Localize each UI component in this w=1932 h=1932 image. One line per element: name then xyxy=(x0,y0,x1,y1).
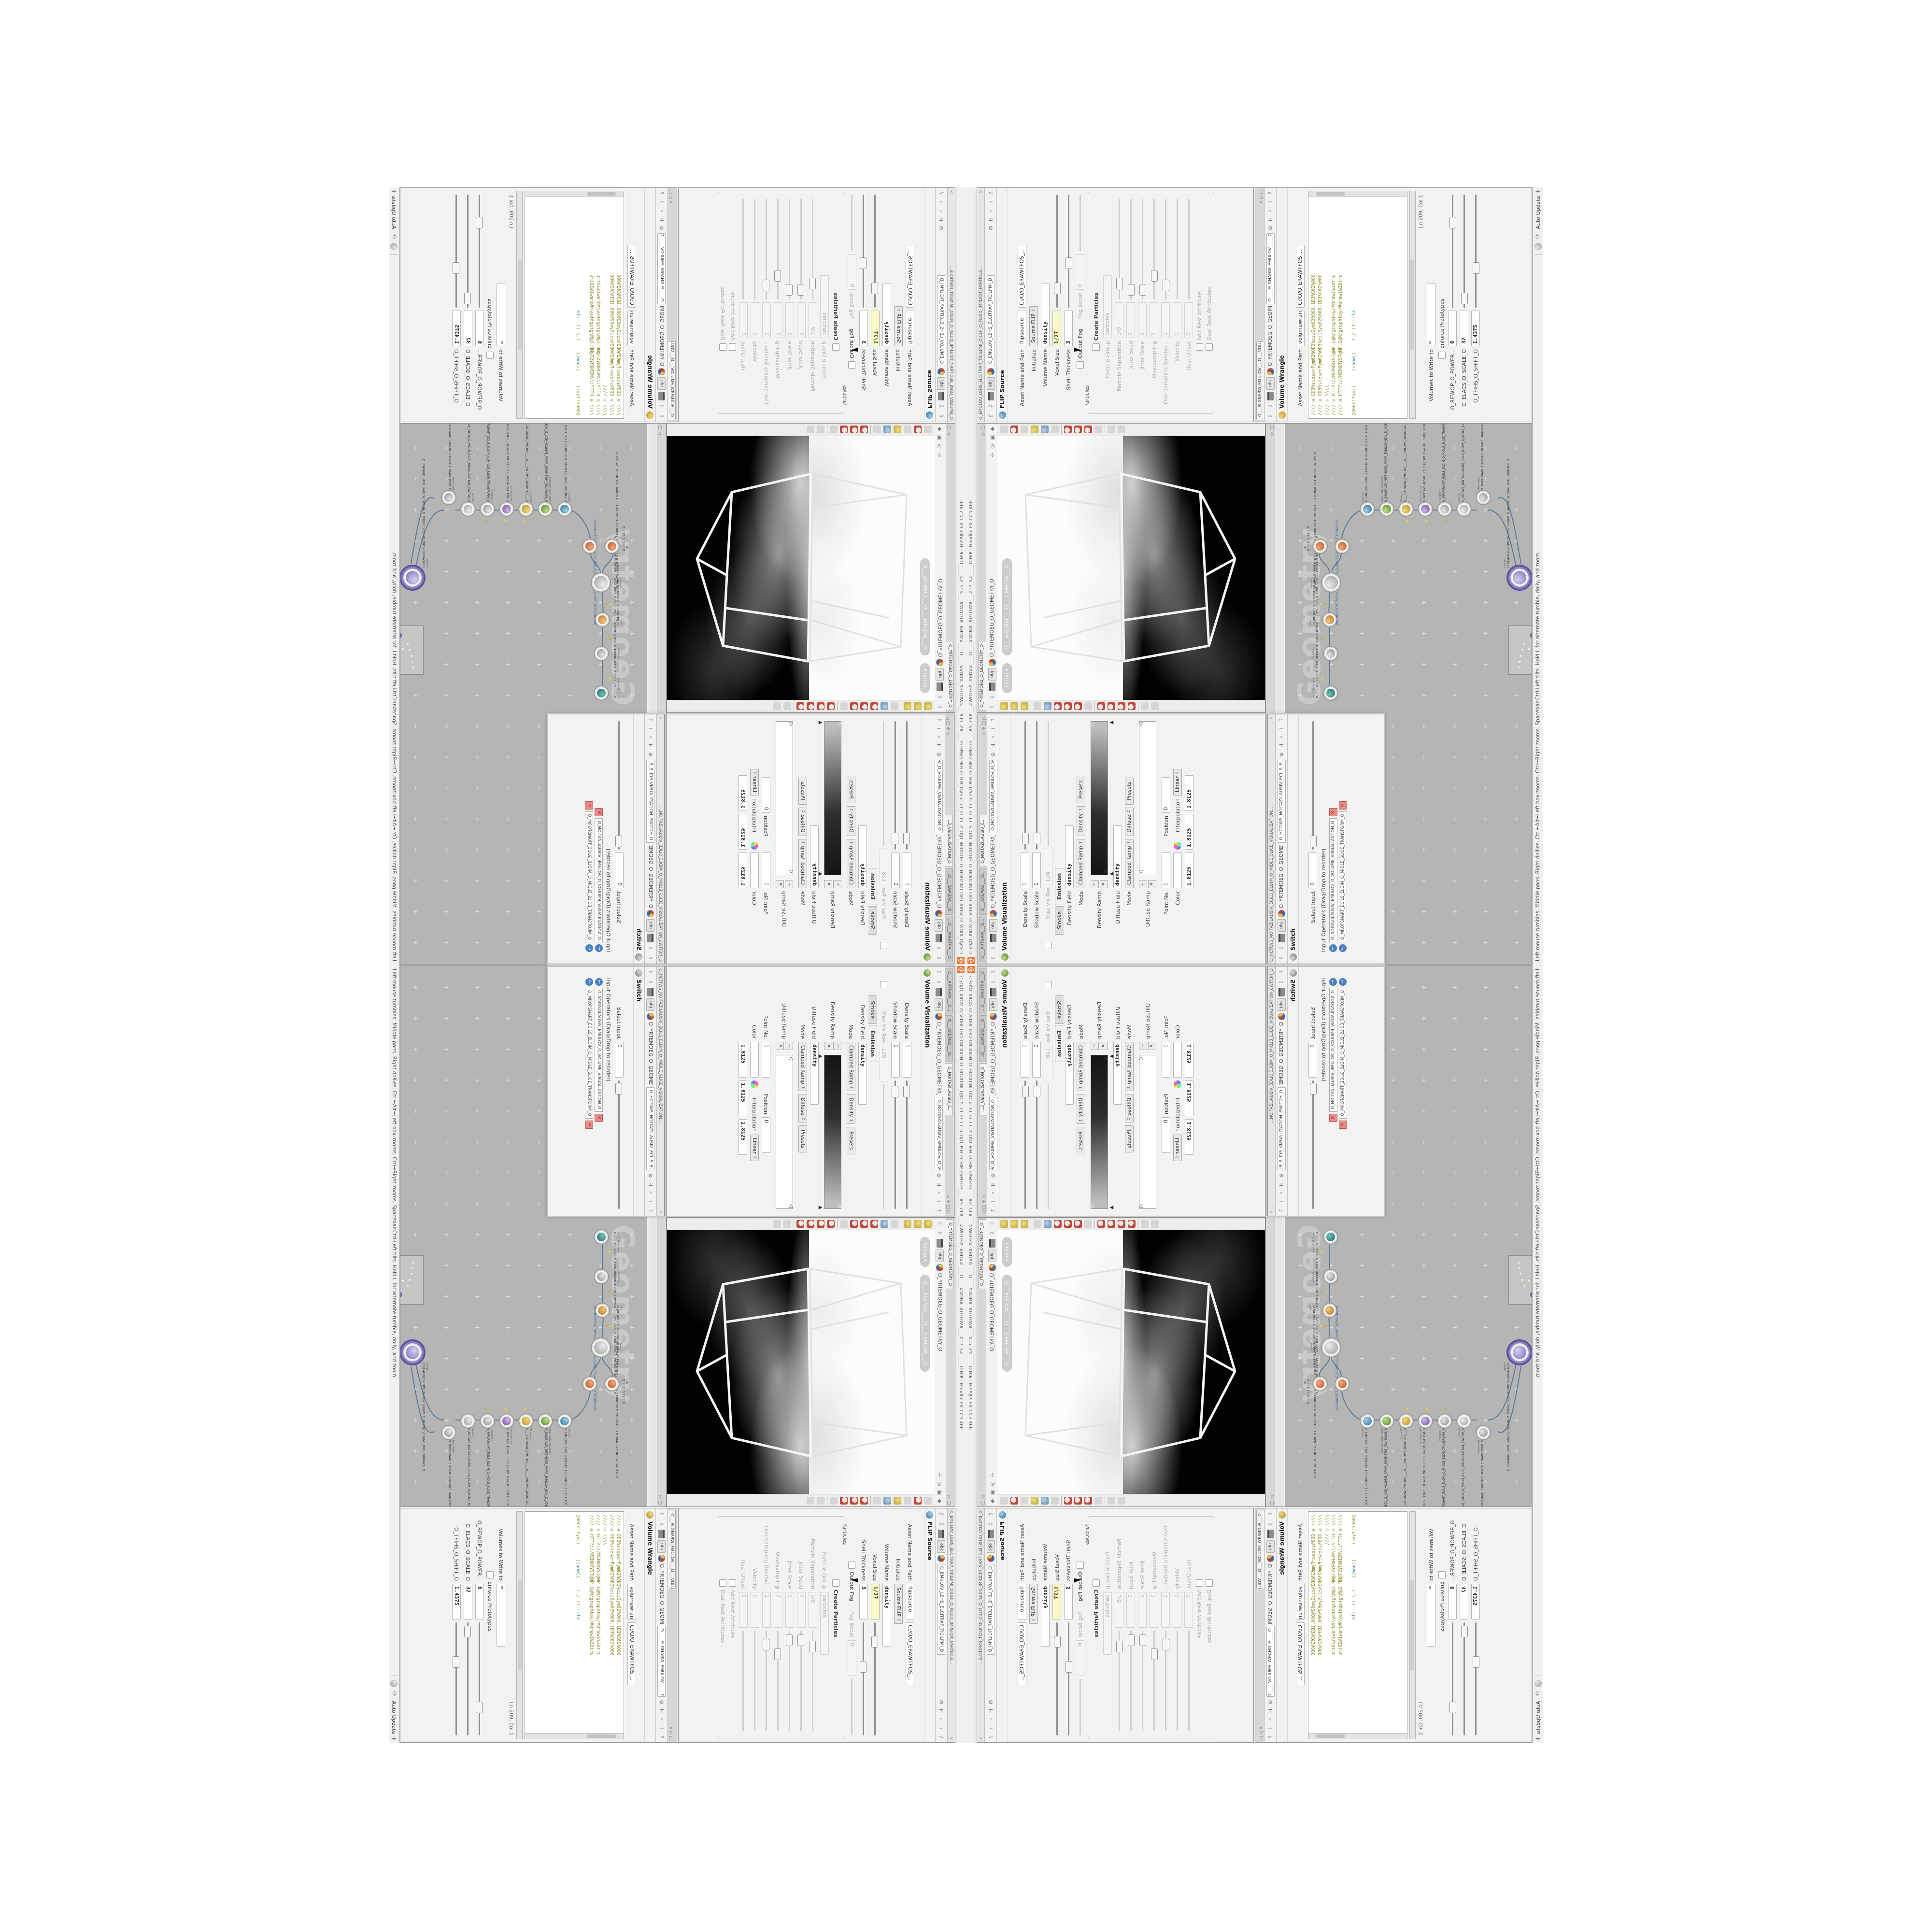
smooth-icon[interactable] xyxy=(1051,426,1059,434)
velocity-field[interactable]: 0 xyxy=(1173,302,1181,338)
vex-code-editor[interactable]: //// ◎ 0D3%steserPym62%0D3%eziSym62%000.… xyxy=(1308,191,1407,419)
flip-window-titlebar[interactable]: O_EMULOV_LEHS_ELCITRAP_TICILPMI_DIULF_O_… xyxy=(947,188,955,422)
asset-path-field[interactable]: C:/O/O_ERAWTFOS_... xyxy=(1296,1622,1305,1685)
voxel-size-slider[interactable] xyxy=(875,1622,876,1735)
network-overview-minimap[interactable] xyxy=(1508,1255,1532,1305)
pane-controls[interactable]: ▷ □ xyxy=(657,1494,662,1506)
node-name-field[interactable]: O_NOITAZILAUSIV_EMULOV_O_VO xyxy=(989,1097,997,1170)
select-input-field[interactable]: 0 xyxy=(1308,1042,1317,1078)
select-tool-icon[interactable] xyxy=(924,703,932,710)
nav-back-icon[interactable]: ⇧ xyxy=(1266,412,1274,420)
network-overview-minimap[interactable] xyxy=(400,1255,424,1305)
position-field[interactable]: 0 xyxy=(762,1117,770,1153)
obj-context-chip[interactable]: obj xyxy=(987,377,995,390)
gear-icon[interactable]: ⚙ xyxy=(1279,1172,1285,1179)
interpolation-dropdown[interactable]: Linear xyxy=(750,1135,759,1161)
render-view[interactable]: Ortho ▾ O___AREMAC___O___CAMERA___O xyxy=(997,436,1265,700)
presets-button[interactable]: Presets xyxy=(798,778,807,805)
info-icon[interactable]: i xyxy=(990,1198,996,1205)
nav-back-icon[interactable]: ⇧ xyxy=(988,703,996,710)
view-tool-icon[interactable] xyxy=(881,703,888,710)
node-name-field[interactable]: O_EMULOV_LEHS_ELCITRAP_TICILPMI_D xyxy=(987,275,995,366)
node-geometry-switch[interactable] xyxy=(592,1338,610,1357)
volumes-to-write-field[interactable]: * xyxy=(1427,284,1435,346)
node-flag[interactable] xyxy=(609,638,611,640)
group-display-icon[interactable] xyxy=(1094,1497,1102,1505)
position-field[interactable]: 0 xyxy=(762,777,770,813)
edit-tool-icon[interactable] xyxy=(1021,1220,1028,1228)
pane-expand-icon[interactable]: ▷ xyxy=(657,1496,662,1499)
info-icon[interactable]: i xyxy=(659,1725,665,1732)
asset-path-field[interactable]: C:/O/O_ERAWTFOS_... xyxy=(1018,1622,1026,1685)
node-name-field[interactable]: O_HCTIWS_NOITAZILAUSIV_ECILS_ELDIM_O_ xyxy=(647,760,655,843)
range-z-field[interactable]: 1.8125 xyxy=(1185,1119,1193,1155)
camera-pill[interactable]: O___AREMAC___O___CAMERA___O xyxy=(920,1275,930,1372)
node-name-field[interactable]: O_NOITAZILAUSIV_EMULOV_O_VO xyxy=(935,760,943,833)
scale-field[interactable]: 32 xyxy=(1460,311,1468,346)
rest-offset-field[interactable]: 0 xyxy=(1184,302,1193,338)
snapshot-icon[interactable]: ◆ xyxy=(989,426,995,432)
density-dropdown[interactable]: Density xyxy=(1077,1094,1085,1124)
ortho-pill[interactable]: Ortho ▾ xyxy=(920,663,930,693)
edit-tool-icon[interactable] xyxy=(904,1220,911,1228)
snap-magnet-icon[interactable] xyxy=(1128,1220,1136,1228)
nav-back-icon[interactable]: ⇧ xyxy=(988,1220,996,1227)
gear-icon[interactable]: ⚙ xyxy=(990,751,996,758)
view-tool-icon[interactable] xyxy=(881,1220,888,1228)
normals-display-icon[interactable] xyxy=(1074,426,1082,434)
info-icon[interactable]: i xyxy=(648,1198,654,1205)
wireframe-display-icon[interactable] xyxy=(840,426,848,434)
input-operator-name[interactable]: O_NOITAZILAUSIV_EMULOV_O_VOLUME_VISUALIZ… xyxy=(1329,818,1337,942)
close-icon[interactable]: × xyxy=(668,1726,673,1730)
asset-name-field[interactable]: volumewrangle xyxy=(1296,311,1305,346)
reorder-arrow-icon[interactable]: ← xyxy=(585,944,593,952)
magnifier-icon[interactable]: ⌕ xyxy=(1267,1716,1274,1723)
node-flip-source[interactable] xyxy=(1361,502,1374,516)
shell-thickness-field[interactable]: 3 xyxy=(859,311,868,346)
shade-icon[interactable] xyxy=(1021,1497,1028,1505)
tab-mantra[interactable]: O___ARTNAM___O... xyxy=(945,916,953,962)
ortho-pill[interactable]: Ortho ▾ xyxy=(1002,663,1012,693)
help-icon[interactable]: ? xyxy=(1279,1207,1285,1214)
handles-tool-icon[interactable] xyxy=(914,703,922,710)
nav-fwd-icon[interactable]: ⇩ xyxy=(936,693,944,701)
node-name-field[interactable]: O_EMULOV_LEHS_ELCITRAP_TICILPMI_D xyxy=(938,275,946,366)
magnifier-icon[interactable]: ⌕ xyxy=(1278,1190,1285,1196)
particle-separation-field[interactable]: 1/9 xyxy=(809,302,817,338)
node-flag[interactable] xyxy=(504,520,507,522)
pane-max-icon[interactable]: □ xyxy=(981,426,986,430)
node-name-field[interactable]: O____ELGNARW_EMULOV_____O_____VO xyxy=(658,233,666,304)
viewport-left-toolbar[interactable] xyxy=(667,700,935,712)
shell-thickness-field[interactable]: 3 xyxy=(859,1584,868,1619)
density-scale-slider[interactable] xyxy=(1024,721,1026,850)
tab-mantra[interactable]: O___ARTNAM___O... xyxy=(979,916,987,962)
pane-controls[interactable]: ▷ □ xyxy=(1270,424,1275,436)
gear-icon[interactable]: ⚙ xyxy=(936,1172,942,1179)
edit-tool-icon[interactable] xyxy=(904,703,911,710)
bullseye-icon[interactable]: ◎ xyxy=(937,443,943,450)
interpolation-dropdown[interactable]: Linear xyxy=(1173,769,1182,796)
density-scale-slider[interactable] xyxy=(907,721,908,850)
pane-max-icon[interactable]: □ xyxy=(657,426,662,430)
voxel-size-field[interactable]: 1/27 xyxy=(871,1584,880,1619)
velocity-field[interactable]: 0 xyxy=(751,302,759,338)
nav-back-icon[interactable]: ⇧ xyxy=(647,968,654,976)
close-icon[interactable]: × xyxy=(1269,1210,1274,1214)
code-scrollbar[interactable] xyxy=(1308,1733,1407,1739)
snapshot-icon[interactable]: ◆ xyxy=(937,1498,943,1505)
color-wheel-icon[interactable] xyxy=(1174,1080,1181,1088)
node-slice-visualization[interactable] xyxy=(500,1414,513,1428)
nav-back-icon[interactable]: ⇧ xyxy=(936,1220,944,1227)
translate-tool-icon[interactable] xyxy=(1054,703,1062,710)
density-scale-field[interactable]: 1 xyxy=(1021,1042,1029,1078)
obj-context-chip[interactable]: obj xyxy=(988,668,996,681)
magnifier-icon[interactable]: ⌕ xyxy=(990,1190,996,1196)
node-clip[interactable] xyxy=(1313,1377,1327,1391)
output-fog-checkbox[interactable] xyxy=(1077,361,1084,369)
shadow-scale-field[interactable]: 1 xyxy=(1032,852,1041,888)
node-polywire[interactable] xyxy=(1324,647,1337,660)
obj-context-chip[interactable]: obj xyxy=(658,1540,666,1553)
magnifier-icon[interactable]: ⌕ xyxy=(647,1190,654,1196)
obj-context-chip[interactable]: obj xyxy=(1266,377,1275,390)
rotate-tool-icon[interactable] xyxy=(1064,1220,1072,1228)
info-icon[interactable]: i xyxy=(648,725,654,732)
nav-fwd-icon[interactable]: ⇩ xyxy=(658,1520,666,1528)
node-flag[interactable] xyxy=(1324,603,1326,605)
diffuse-ramp-widget[interactable]: ◁ ◁ xyxy=(776,721,793,875)
asset-path-field[interactable]: C:/O/O_ERAWTFOS_... xyxy=(1296,245,1305,308)
pose-tool-icon[interactable] xyxy=(1084,1220,1092,1228)
node-flag[interactable] xyxy=(610,603,612,605)
pane-max-icon[interactable]: □ xyxy=(1259,190,1264,194)
particle-separation-field[interactable]: 1/9 xyxy=(1115,302,1123,338)
nav-fwd-icon[interactable]: ⇩ xyxy=(988,693,996,701)
node-visualization-switch[interactable] xyxy=(1457,502,1471,516)
node-flag[interactable] xyxy=(609,1250,611,1253)
pane-expand-icon[interactable]: ▷ xyxy=(982,716,987,720)
switch-window-titlebar[interactable]: O_HCTIWS_NOITAZILAUSIV_ECILS_ELDIM_O_MID… xyxy=(1268,966,1276,1216)
cancel-icon[interactable] xyxy=(914,426,922,434)
points-display-icon[interactable] xyxy=(1064,1497,1072,1505)
voxel-size-field[interactable]: 1/27 xyxy=(871,311,880,346)
magnifier-icon[interactable]: ⌕ xyxy=(647,734,654,740)
gear-icon[interactable]: ⚙ xyxy=(648,751,654,758)
node-vdb-from-polygons[interactable] xyxy=(539,1414,552,1428)
code-hscrollbar[interactable] xyxy=(1409,191,1416,419)
viewport-left-toolbar[interactable] xyxy=(667,1218,935,1230)
rest-offset-field[interactable]: 0 xyxy=(739,302,748,338)
pane-split-icon[interactable]: ✛ xyxy=(982,1200,987,1204)
help-icon[interactable]: ? xyxy=(988,1733,994,1740)
node-flip-source[interactable] xyxy=(558,502,571,516)
node-name-field[interactable]: O_HCTIWS_NOITAZILAUSIV_ECILS_ELDIM_O_ xyxy=(1278,760,1286,843)
voxel-size-slider[interactable] xyxy=(1056,195,1058,308)
shade-icon[interactable] xyxy=(904,426,911,434)
visualizer-icon[interactable] xyxy=(1118,426,1125,434)
dual-rest-checkbox[interactable] xyxy=(1206,343,1213,351)
shift-field[interactable]: 1.4375 xyxy=(1471,311,1480,346)
breadcrumb[interactable]: O_YRTEMOEG_O_GEOMETRY_O xyxy=(648,845,653,909)
node-clip[interactable] xyxy=(605,1377,619,1391)
ramp-delete-button[interactable]: ✕ xyxy=(1100,880,1108,888)
node-name-field[interactable]: O____ELGNARW_EMULOV_____O_____VO xyxy=(658,1626,666,1697)
diffuse-field[interactable]: density xyxy=(810,825,819,888)
breadcrumb[interactable]: O_YRTEMOEG_O_GEOMETRY_O xyxy=(990,835,996,908)
shell-thickness-slider[interactable] xyxy=(863,195,865,308)
flipbook-tool-icon[interactable] xyxy=(1151,1220,1159,1228)
pose-tool-icon[interactable] xyxy=(840,1220,848,1228)
reorder-arrow-icon[interactable]: ← xyxy=(1339,978,1347,986)
node-volume-wrangle[interactable] xyxy=(519,1414,533,1428)
jitter-seed-field[interactable]: 0 xyxy=(797,302,806,338)
light-icon[interactable] xyxy=(1031,426,1038,434)
asset-path-field[interactable]: C:/O/O_ERAWTFOS_... xyxy=(627,245,636,308)
camera-pill[interactable]: O___AREMAC___O___CAMERA___O xyxy=(1002,558,1012,655)
color-swatch[interactable] xyxy=(750,1042,759,1078)
viewport-client[interactable]: Ortho ▾ O___AREMAC___O___CAMERA___O xyxy=(667,1218,935,1506)
gear-icon[interactable]: ⚙ xyxy=(1267,1699,1274,1705)
power-slider[interactable] xyxy=(1452,195,1453,308)
gear-icon[interactable]: ⚙ xyxy=(988,1699,994,1705)
node-clip2[interactable] xyxy=(583,1377,597,1391)
initialize-dropdown[interactable]: Source FLIP xyxy=(1029,1584,1038,1624)
nav-back-icon[interactable]: ⇧ xyxy=(938,1510,945,1518)
asset-path-field[interactable]: C:/O/O_ERAWTFOS_... xyxy=(906,1622,914,1685)
lock-icon[interactable] xyxy=(924,426,932,434)
create-particles-checkbox[interactable] xyxy=(833,343,840,351)
cancel-icon[interactable] xyxy=(914,1497,922,1505)
max-vis-res-field[interactable]: 128 xyxy=(1044,849,1052,884)
pane-max-icon[interactable]: □ xyxy=(945,1205,950,1209)
input-operator-name[interactable]: O_NOITAZILAUSIV_EMULOV_O_VOLUME_VISUALIZ… xyxy=(595,818,603,942)
auto-update-spinner[interactable]: ▲▼ xyxy=(392,190,397,193)
node-clip[interactable] xyxy=(605,540,619,553)
node-geometry-switch[interactable] xyxy=(1322,1338,1340,1357)
point-no-field[interactable]: 1 xyxy=(1162,852,1170,888)
wireframe-display-icon[interactable] xyxy=(840,1497,848,1505)
code-scrollbar[interactable] xyxy=(525,191,624,197)
nav-back-icon[interactable]: ⇧ xyxy=(935,954,943,962)
oversampling-bandwidth-field[interactable]: 1 xyxy=(1161,1592,1170,1628)
tab-visualization[interactable]: O_NOITAZILAUSIV_E... xyxy=(945,815,953,867)
edit-tool-icon[interactable] xyxy=(1021,703,1028,710)
close-icon[interactable]: × xyxy=(979,190,983,194)
help-icon[interactable]: ? xyxy=(938,1733,945,1740)
scale-slider[interactable] xyxy=(1463,1622,1465,1735)
snap-edge-icon[interactable] xyxy=(807,1220,814,1228)
node-flag[interactable] xyxy=(1321,1290,1323,1293)
pane-split-icon[interactable]: ✛ xyxy=(945,1200,950,1204)
node-clip[interactable] xyxy=(1313,540,1327,553)
range-x-field[interactable]: 1.8125 xyxy=(739,852,747,888)
recook-icon[interactable]: ⟳ xyxy=(391,233,398,240)
pane-max-icon[interactable]: □ xyxy=(1270,426,1275,430)
node-cubesphere[interactable] xyxy=(1324,1230,1337,1244)
tab-mantra[interactable]: O___ARTNAM___O... xyxy=(979,968,987,1014)
node-slice-visualization[interactable] xyxy=(1419,1414,1432,1428)
camera-icon[interactable]: ▣ xyxy=(937,434,943,441)
obj-context-chip[interactable]: obj xyxy=(658,377,666,390)
render-view[interactable]: Ortho ▾ O___AREMAC___O___CAMERA___O xyxy=(667,436,935,700)
view-tool-icon[interactable] xyxy=(1044,1220,1051,1228)
breadcrumb[interactable]: O_YRTEMOEG_O_GEOMETRY_O xyxy=(1267,1564,1273,1624)
handles-tool-icon[interactable] xyxy=(914,1220,922,1228)
jitter-scale-field[interactable]: 0 xyxy=(785,302,794,338)
breadcrumb[interactable]: O_YRTEMOEG_O_GEOMETRY_O xyxy=(1267,306,1273,367)
gear-icon[interactable]: ⚙ xyxy=(938,1699,945,1705)
breadcrumb[interactable]: O_YRTEMOEG_O_GEOMETRY_O xyxy=(936,1022,942,1095)
help-icon[interactable]: ? xyxy=(1267,1733,1274,1740)
range-z-field[interactable]: 1.8125 xyxy=(739,1119,747,1155)
shade-icon[interactable] xyxy=(1021,426,1028,434)
snap-point-icon[interactable] xyxy=(1108,1220,1115,1228)
range-x-field[interactable]: 1.8125 xyxy=(1185,852,1193,888)
mode-dropdown[interactable]: Clamped Ramp xyxy=(1077,839,1085,888)
nav-fwd-icon[interactable]: ⇩ xyxy=(647,978,654,986)
visualizer-icon[interactable] xyxy=(807,426,814,434)
range-y-field[interactable]: 1.8125 xyxy=(1185,1080,1193,1116)
camera-pill[interactable]: O___AREMAC___O___CAMERA___O xyxy=(920,558,930,655)
nav-back-icon[interactable]: ⇧ xyxy=(989,968,997,976)
remove-input-icon[interactable]: ✕ xyxy=(1329,808,1337,816)
power-slider[interactable] xyxy=(479,195,481,308)
node-vdb-from-polygons[interactable] xyxy=(1380,502,1393,516)
nav-fwd-icon[interactable]: ⇩ xyxy=(989,944,997,952)
group-display-icon[interactable] xyxy=(830,1497,838,1505)
switch-window-titlebar[interactable]: O_HCTIWS_NOITAZILAUSIV_ECILS_ELDIM_O_MID… xyxy=(1268,714,1276,964)
ramp-add-button[interactable]: + xyxy=(785,1042,793,1050)
group-display-icon[interactable] xyxy=(830,426,838,434)
node-flag[interactable] xyxy=(1425,1408,1428,1410)
snap-grid-icon[interactable] xyxy=(827,703,835,710)
brush-icon[interactable] xyxy=(817,426,824,434)
oversampling-bandwidth-field[interactable]: 1 xyxy=(762,1592,771,1628)
snap-edge-icon[interactable] xyxy=(1118,1220,1125,1228)
pin-icon[interactable]: ⊹ xyxy=(989,1472,995,1478)
max-vis-res-checkbox[interactable] xyxy=(881,981,888,988)
rotate-tool-icon[interactable] xyxy=(860,703,868,710)
node-clip2[interactable] xyxy=(583,540,597,553)
breadcrumb[interactable]: O_YRTEMOEG_O_GEOMETRY_O xyxy=(937,1273,943,1351)
obj-context-chip[interactable]: obj xyxy=(935,919,943,932)
node-result-transform[interactable] xyxy=(1477,491,1490,504)
node-flag[interactable] xyxy=(606,1325,608,1327)
asset-name-field[interactable]: volumewrangle xyxy=(627,311,636,346)
obj-context-chip[interactable]: obj xyxy=(987,1540,995,1553)
range-x-field[interactable]: 1.8125 xyxy=(739,1042,747,1078)
velocity-field[interactable]: 0 xyxy=(1173,1592,1181,1628)
magnifier-icon[interactable]: ⌕ xyxy=(658,1716,665,1723)
node-merge-display[interactable] xyxy=(1510,1343,1529,1362)
shade-icon[interactable] xyxy=(904,1497,911,1505)
code-scrollbar[interactable] xyxy=(525,1733,624,1739)
oversampling-field[interactable]: 2 xyxy=(774,302,782,338)
node-flag[interactable] xyxy=(1406,1408,1408,1410)
density-ramp-widget[interactable]: ◁ ● ▲ ▲ xyxy=(1091,721,1108,875)
tab-mantra[interactable]: O___ARTNAM___O... xyxy=(945,968,953,1014)
node-flag[interactable] xyxy=(609,677,611,680)
nav-fwd-icon[interactable]: ⇩ xyxy=(935,944,943,952)
nav-fwd-icon[interactable]: ⇩ xyxy=(935,978,943,986)
pane-controls[interactable]: ▷ □ xyxy=(1270,1494,1275,1506)
node-slice-transform[interactable] xyxy=(1438,1414,1451,1428)
shadow-scale-slider[interactable] xyxy=(895,1080,896,1209)
camera-icon[interactable]: ▣ xyxy=(989,434,995,441)
scale-tool-icon[interactable] xyxy=(850,703,858,710)
obj-context-chip[interactable]: obj xyxy=(938,377,946,390)
input-operator-name[interactable]: O_MROFSNART_ECILS_ELDIM_O_MIDLE_SLICE_TR… xyxy=(585,811,594,942)
density-ramp-widget[interactable]: ◁ ● ▲ ▲ xyxy=(824,721,841,875)
wireframe-display-icon[interactable] xyxy=(1084,1497,1092,1505)
pane-split-icon[interactable]: ✛ xyxy=(982,726,987,730)
help-icon[interactable]: ? xyxy=(990,716,996,723)
close-icon[interactable]: × xyxy=(658,1210,663,1214)
pane-max-icon[interactable]: □ xyxy=(981,1500,986,1505)
gear-icon[interactable]: ⚙ xyxy=(1279,751,1285,758)
node-volume-wrangle[interactable] xyxy=(1399,1414,1413,1428)
color-swatch[interactable] xyxy=(1173,852,1182,888)
help-icon[interactable]: ? xyxy=(988,190,994,197)
tab-camera[interactable]: O___AREMAC___O... xyxy=(979,868,987,915)
flip-window-titlebar[interactable]: O_EMULOV_LEHS_ELCITRAP_TICILPMI_DIULF_O_… xyxy=(977,1508,985,1742)
pose-tool-icon[interactable] xyxy=(840,703,848,710)
pane-expand-icon[interactable]: ▷ xyxy=(981,431,986,435)
nav-back-icon[interactable]: ⇧ xyxy=(658,1510,666,1518)
info-icon[interactable]: i xyxy=(938,199,945,205)
presets-button[interactable]: Presets xyxy=(1077,776,1085,803)
select-input-field[interactable]: 0 xyxy=(1308,852,1317,888)
density-dropdown[interactable]: Density xyxy=(847,806,855,836)
ramp-delete-button[interactable]: ✕ xyxy=(824,880,832,888)
shadow-scale-field[interactable]: 1 xyxy=(891,1042,900,1078)
node-clip2[interactable] xyxy=(1335,540,1349,553)
arrow-tool-icon[interactable] xyxy=(891,1220,898,1228)
ramp-delete-button[interactable]: ✕ xyxy=(1100,1042,1108,1050)
magnifier-icon[interactable]: ⌕ xyxy=(658,207,665,214)
node-name-field[interactable]: O____ELGNARW_EMULOV_____O_____VO xyxy=(1266,1626,1275,1697)
tab-visualization[interactable]: O_NOITAZILAUSIV_E... xyxy=(979,1063,987,1115)
shift-slider[interactable] xyxy=(1475,1622,1477,1735)
diffuse-dropdown[interactable]: Diffuse xyxy=(1125,808,1134,836)
presets-button[interactable]: Presets xyxy=(847,776,855,803)
mode2-dropdown[interactable]: Clamped Ramp xyxy=(798,1042,807,1091)
node-result-transform[interactable] xyxy=(442,1426,455,1439)
breadcrumb[interactable]: O_YRTEMOEG_O_GEOMETRY_O xyxy=(659,1564,665,1624)
pane-expand-icon[interactable]: ▷ xyxy=(657,431,662,435)
close-icon[interactable]: × xyxy=(979,1736,983,1740)
node-flag[interactable] xyxy=(609,1290,611,1293)
density-dropdown[interactable]: Density xyxy=(847,1094,855,1124)
nav-fwd-icon[interactable]: ⇩ xyxy=(988,1229,996,1237)
code-hscrollbar[interactable] xyxy=(1409,1511,1416,1739)
range-z-field[interactable]: 1.8125 xyxy=(1185,775,1193,811)
power-slider[interactable] xyxy=(479,1622,481,1735)
tab-visualization[interactable]: O_NOITAZILAUSIV_E... xyxy=(979,815,987,867)
interpolation-dropdown[interactable]: Linear xyxy=(1173,1135,1182,1161)
normals-display-icon[interactable] xyxy=(850,1497,858,1505)
pane-expand-icon[interactable]: ▷ xyxy=(981,1496,986,1499)
tab-smoke[interactable]: Smoke xyxy=(1055,906,1064,935)
translate-tool-icon[interactable] xyxy=(870,703,878,710)
jitter-scale-field[interactable]: 0 xyxy=(785,1592,794,1628)
node-flag[interactable] xyxy=(504,1408,507,1410)
node-result-transform[interactable] xyxy=(442,491,455,504)
pane-expand-icon[interactable]: ▷ xyxy=(946,431,951,435)
